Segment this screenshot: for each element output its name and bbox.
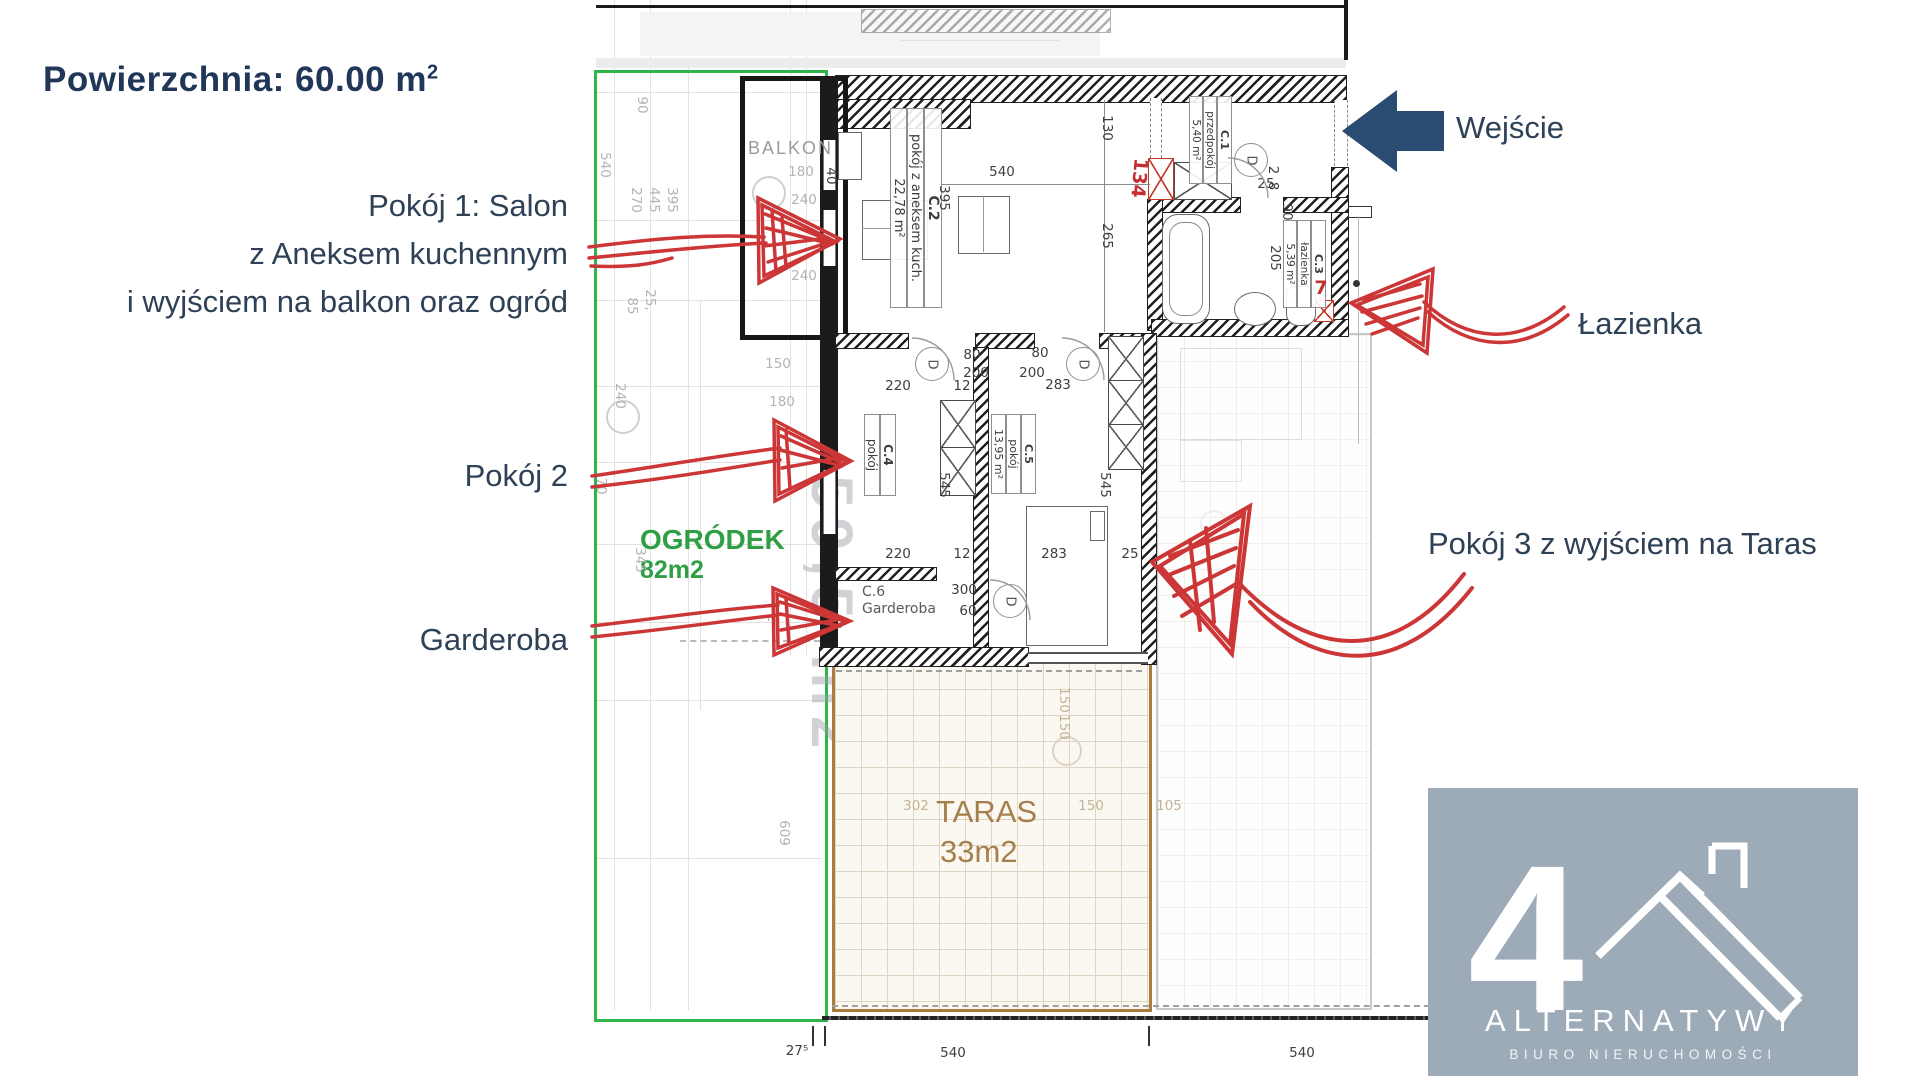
entrance-arrow-icon (1342, 90, 1444, 172)
agency-logo-graphic: 4 ALTERNATYWY BIURO NIERUCHOMOŚCI (1428, 788, 1858, 1076)
red-arrow-room1 (589, 198, 840, 283)
floor-plan-page: OGRÓDEK 82m2 - 59,5 m2 TARAS 33m2 (0, 0, 1920, 1080)
agency-logo: 4 ALTERNATYWY BIURO NIERUCHOMOŚCI (1428, 788, 1858, 1076)
red-arrow-bathroom (1351, 269, 1568, 353)
red-arrow-room3 (1152, 506, 1472, 656)
logo-brand: ALTERNATYWY (1485, 1003, 1801, 1038)
door-arcs (912, 158, 1268, 620)
red-arrow-garderoba (592, 588, 850, 655)
logo-roof-icon (1598, 846, 1800, 1018)
logo-subtitle: BIURO NIERUCHOMOŚCI (1509, 1047, 1776, 1062)
red-arrow-room2 (592, 420, 851, 501)
